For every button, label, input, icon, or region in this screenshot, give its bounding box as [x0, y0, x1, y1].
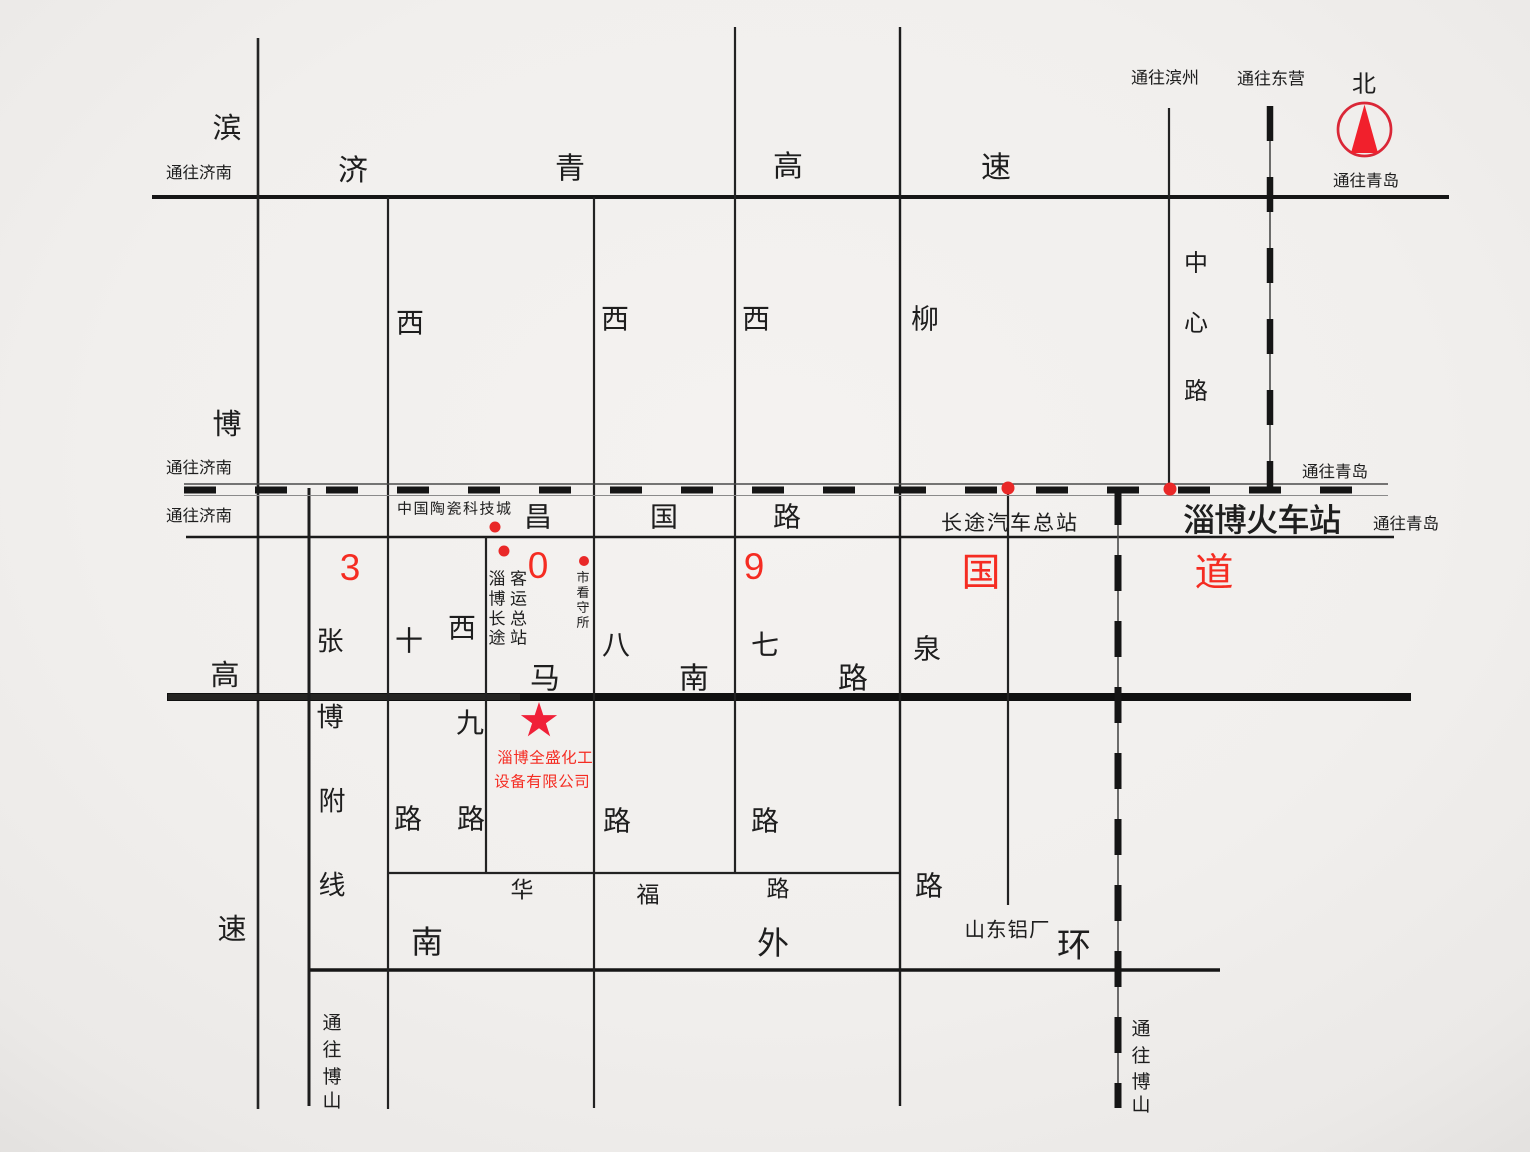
svg-text:3: 3: [340, 547, 361, 588]
svg-text:0: 0: [528, 545, 549, 586]
svg-text:9: 9: [744, 546, 765, 587]
